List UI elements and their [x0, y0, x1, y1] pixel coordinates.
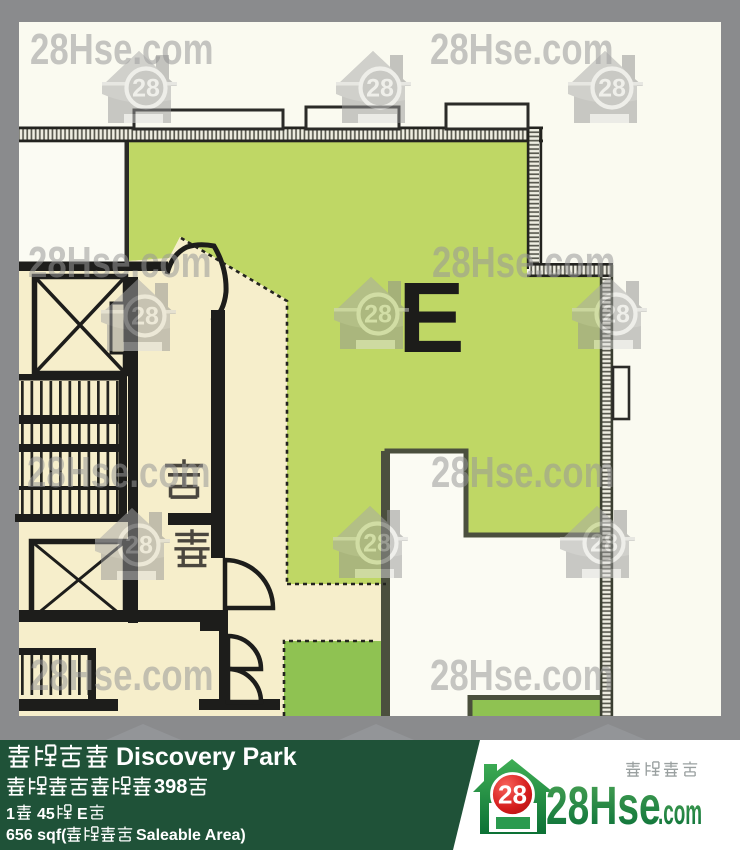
- svg-text:28Hse: 28Hse: [546, 775, 661, 836]
- svg-text:Discovery Park: Discovery Park: [116, 743, 297, 771]
- svg-text:1: 1: [6, 806, 15, 823]
- svg-text:E: E: [77, 806, 88, 823]
- svg-text:.com: .com: [658, 793, 702, 832]
- svg-text:398: 398: [154, 776, 187, 798]
- svg-text:45: 45: [37, 806, 55, 823]
- svg-text:656 sqf(: 656 sqf(: [6, 827, 67, 844]
- svg-text:Saleable Area): Saleable Area): [136, 827, 246, 844]
- svg-text:28: 28: [498, 780, 527, 810]
